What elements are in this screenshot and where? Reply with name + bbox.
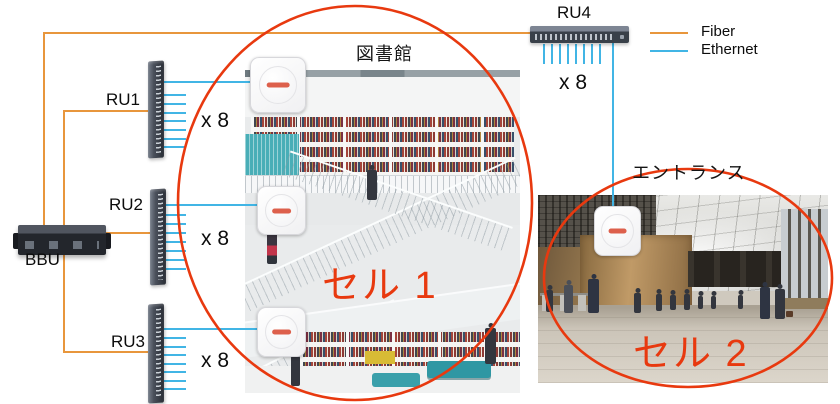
person-silhouette xyxy=(711,296,716,309)
person-silhouette xyxy=(546,290,553,312)
ru2-multiplier: x 8 xyxy=(201,227,229,250)
person-silhouette xyxy=(564,285,573,313)
ethernet-ru4-ports xyxy=(544,44,600,64)
entrance-turnstile xyxy=(578,295,586,311)
person-silhouette xyxy=(698,296,703,309)
person-silhouette xyxy=(267,230,277,264)
library-bench xyxy=(372,373,420,387)
ru4-device xyxy=(530,26,629,43)
ap-logo-mark xyxy=(272,330,292,335)
library-yellow-books xyxy=(365,351,395,364)
person-silhouette xyxy=(485,328,496,364)
person-silhouette xyxy=(775,289,785,319)
cell1-label: セル 1 xyxy=(322,266,438,308)
ru4-multiplier: x 8 xyxy=(559,71,587,94)
library-bench xyxy=(427,361,491,378)
person-silhouette xyxy=(367,170,377,200)
ap-logo-mark xyxy=(272,208,292,213)
ru1-multiplier: x 8 xyxy=(201,109,229,132)
access-point-2 xyxy=(257,186,306,235)
briefcase xyxy=(786,311,793,317)
legend-fiber-label: Fiber xyxy=(701,24,735,41)
person-silhouette xyxy=(656,294,662,311)
ru4-led xyxy=(620,35,624,39)
ru3-label: RU3 xyxy=(111,333,145,352)
ap-logo-mark xyxy=(608,229,627,234)
person-silhouette xyxy=(634,293,641,313)
ru3-device xyxy=(148,303,164,403)
ru2-device xyxy=(150,188,166,285)
entrance-title: エントランス xyxy=(632,164,746,184)
ap-logo-mark xyxy=(267,83,290,88)
ru1-device xyxy=(148,60,164,158)
person-silhouette xyxy=(684,294,690,310)
person-silhouette xyxy=(588,279,599,313)
ethernet-ru2-ports xyxy=(166,215,186,269)
access-point-1 xyxy=(250,57,306,113)
ethernet-ru3-ports xyxy=(164,338,186,389)
access-point-4 xyxy=(594,206,641,256)
network-architecture-diagram: RU4 Fiber Ethernet 図書館 RU1 x 8 x 8 エントラン… xyxy=(0,0,840,404)
person-silhouette xyxy=(738,295,743,309)
person-silhouette xyxy=(760,287,770,319)
ru3-multiplier: x 8 xyxy=(201,349,229,372)
access-point-3 xyxy=(257,307,306,357)
library-title: 図書館 xyxy=(356,45,413,65)
person-silhouette xyxy=(670,295,676,310)
ethernet-ru1-ports xyxy=(164,95,186,147)
cell2-label: セル 2 xyxy=(633,334,749,376)
bbu-label: BBU xyxy=(25,251,60,270)
legend-ethernet-label: Ethernet xyxy=(701,42,758,59)
person-silhouette xyxy=(291,356,300,386)
ru2-label: RU2 xyxy=(109,196,143,215)
ru4-label: RU4 xyxy=(557,4,591,23)
bbu-front-ports xyxy=(25,241,99,249)
ru1-label: RU1 xyxy=(106,91,140,110)
